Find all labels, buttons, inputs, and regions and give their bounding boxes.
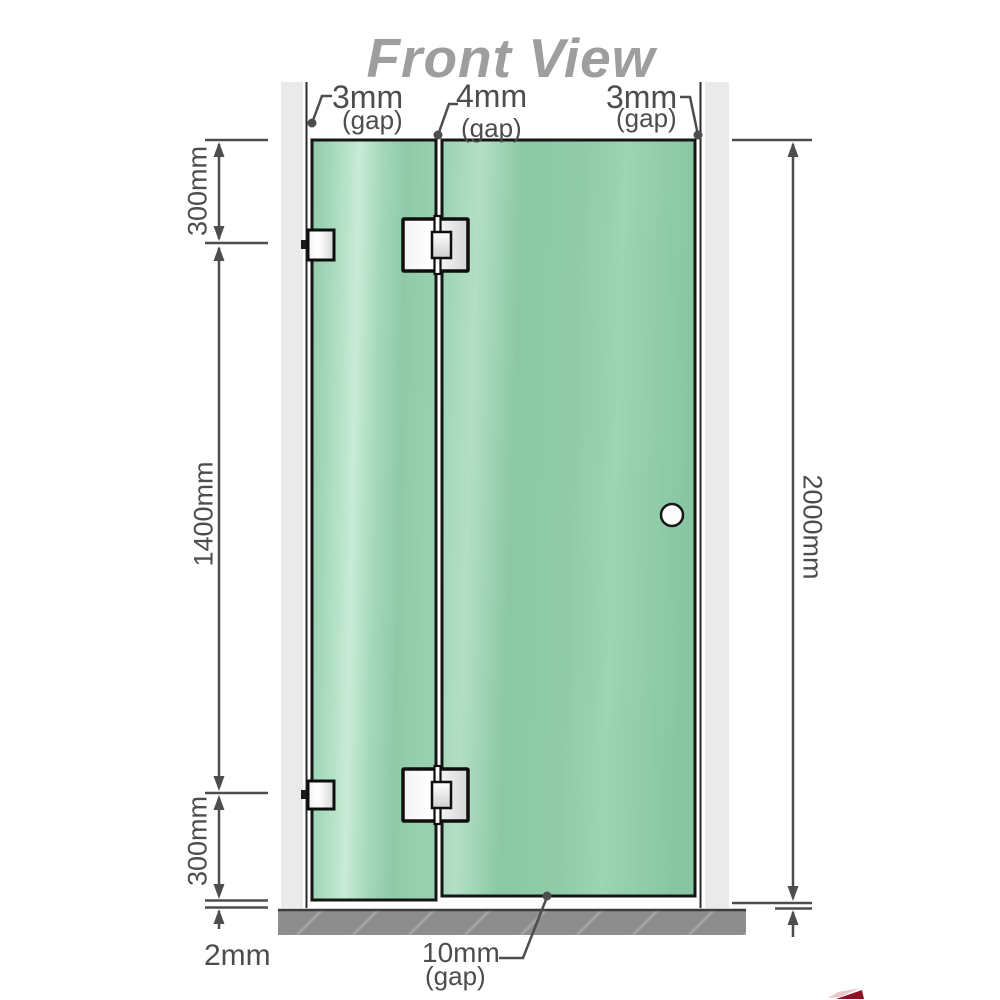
door-glass-panel: [442, 140, 695, 896]
diagram-canvas: [0, 0, 1000, 1000]
left-wall: [281, 82, 303, 908]
door-knob: [661, 504, 683, 526]
front-view-diagram: Front View 3mm (gap) 4mm (gap) 3mm (gap)…: [0, 0, 1000, 1000]
dim-right-height: 2000mm: [799, 474, 826, 579]
hinge-top: [403, 216, 468, 274]
dim-floor-gap: 2mm: [204, 941, 271, 971]
right-wall: [705, 82, 729, 908]
dim-middle-left: 1400mm: [191, 461, 218, 566]
floor-base: [278, 909, 746, 935]
gap-middle-unit: (gap): [461, 115, 522, 141]
gap-right-unit: (gap): [616, 105, 677, 131]
hinge-bottom: [403, 766, 468, 824]
dim-top-left: 300mm: [185, 146, 212, 236]
gap-bottom-unit: (gap): [425, 963, 486, 989]
gap-middle-value: 4mm: [456, 80, 527, 112]
dim-bottom-left: 300mm: [185, 796, 212, 886]
gap-left-unit: (gap): [342, 107, 403, 133]
watermark-fragment: [828, 988, 864, 999]
